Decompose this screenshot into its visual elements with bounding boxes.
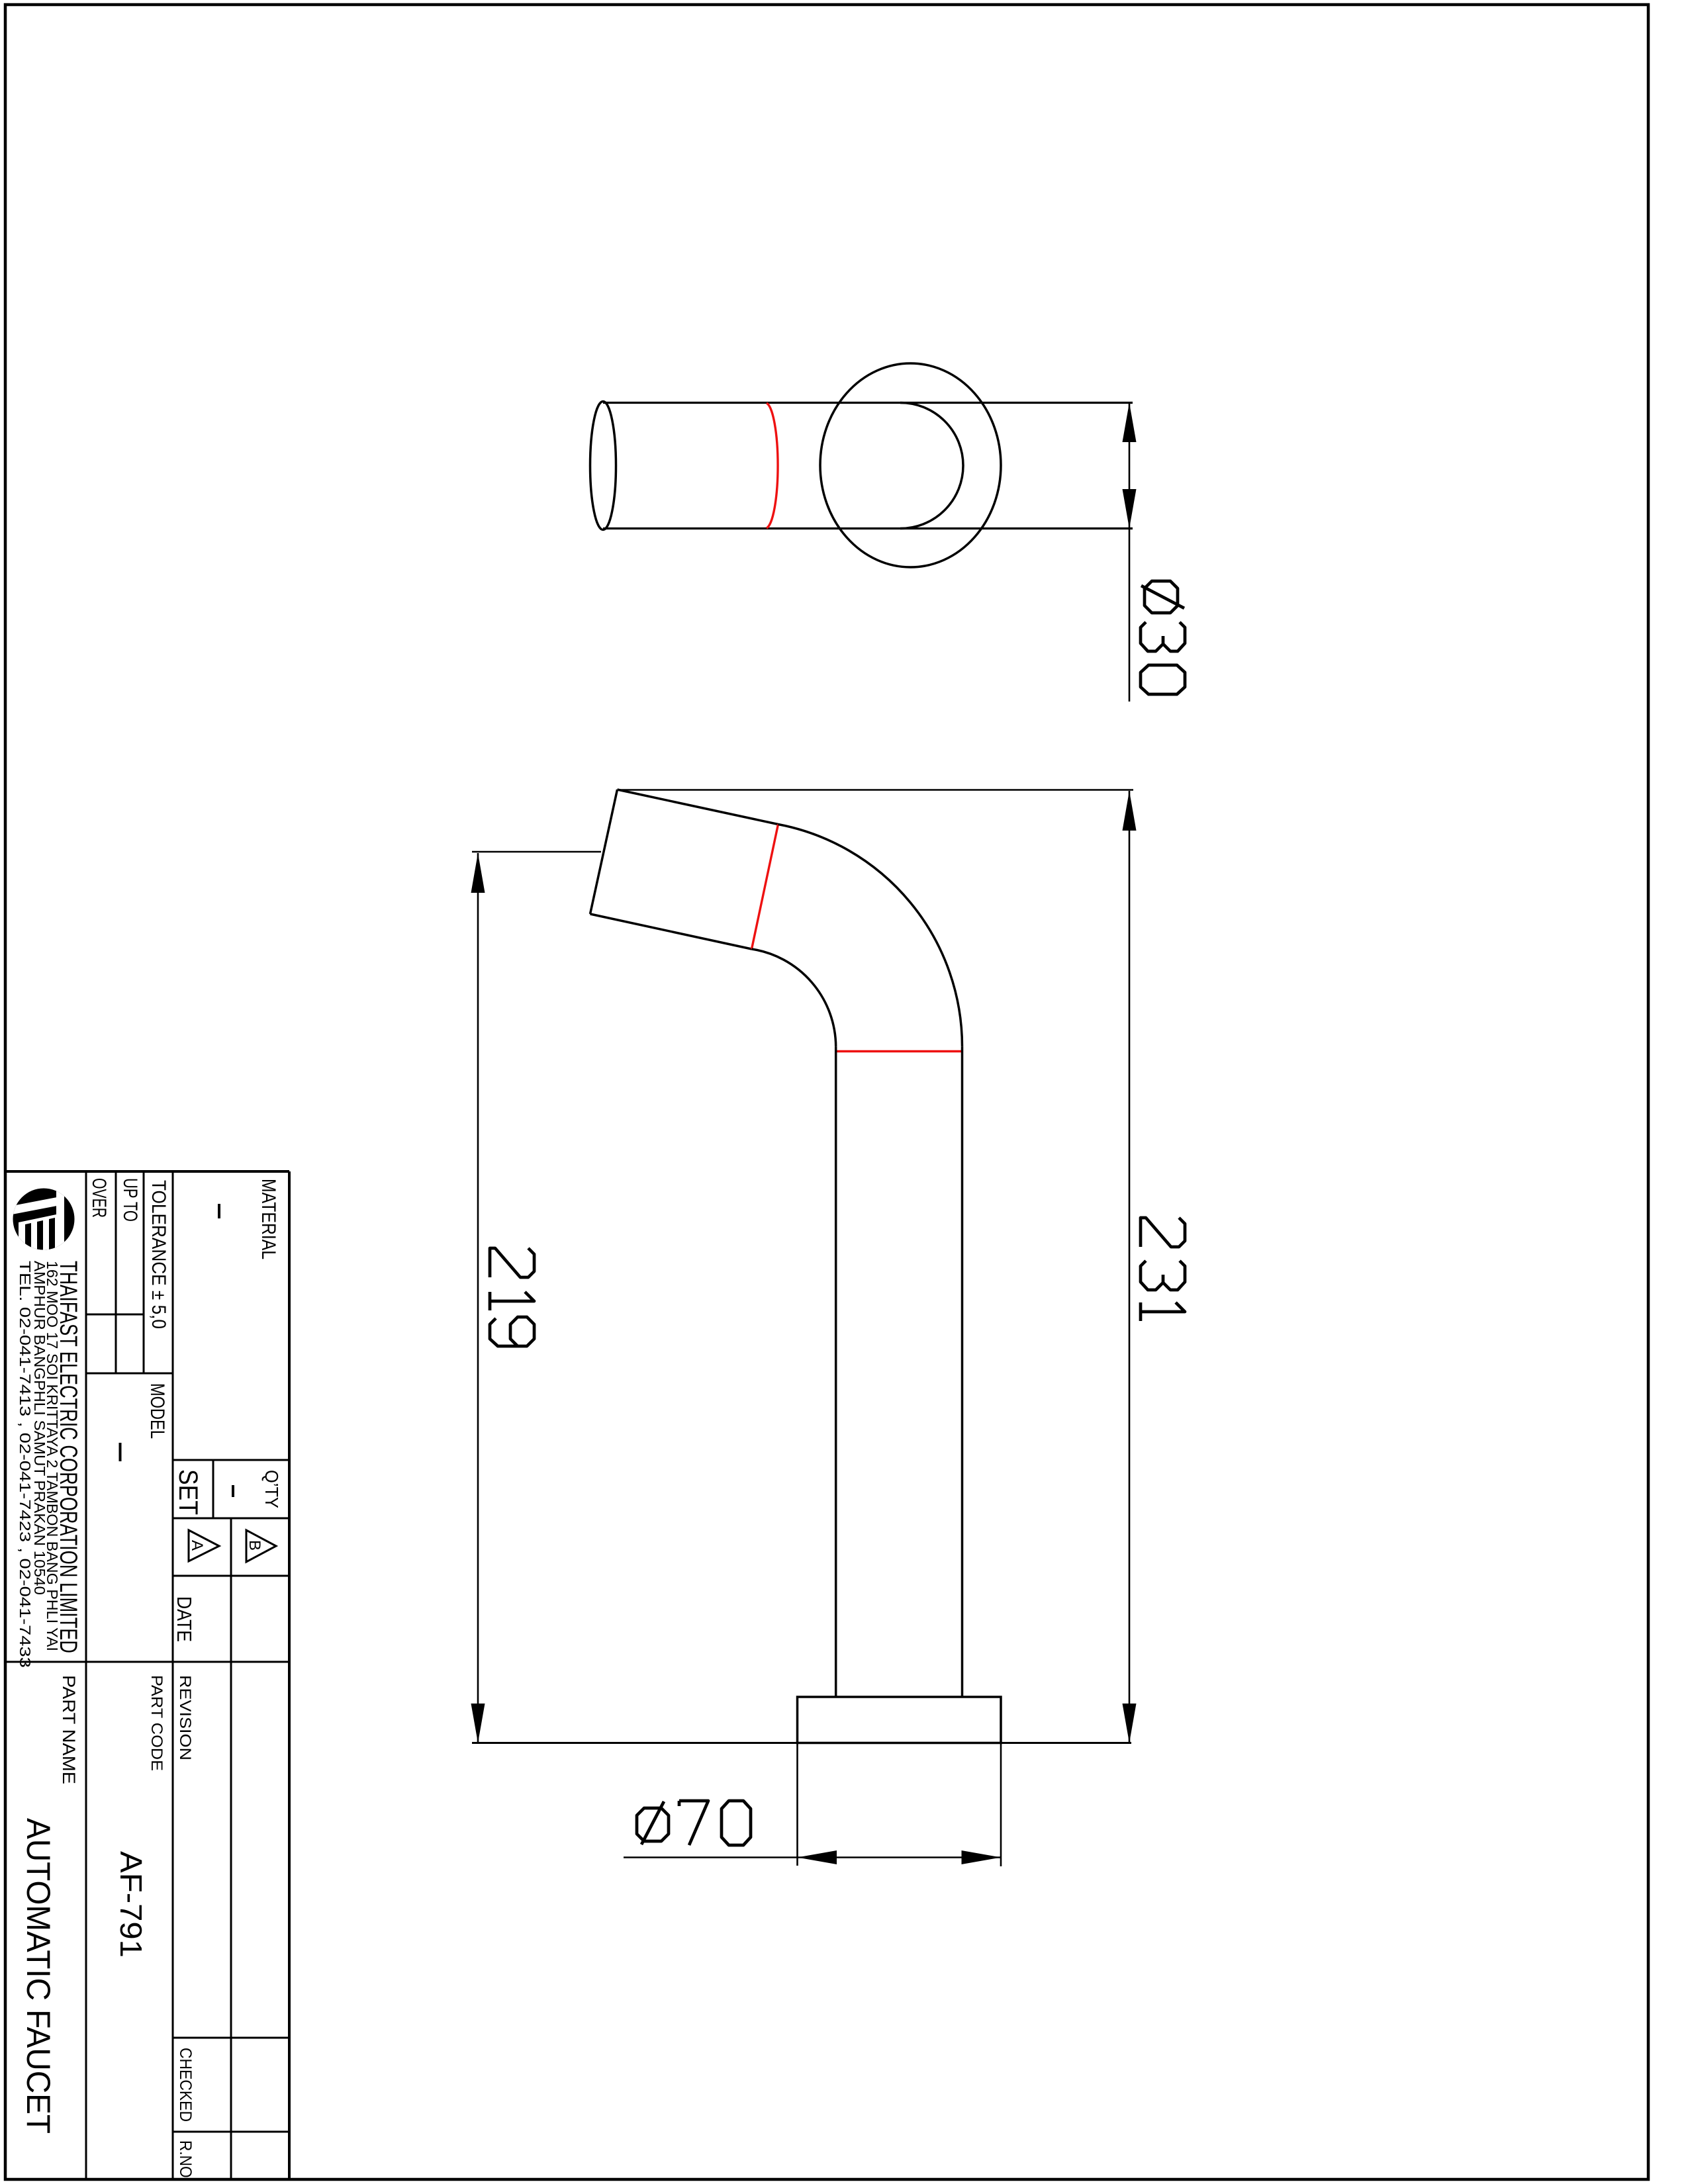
svg-text:AF-791: AF-791 bbox=[114, 1851, 148, 1958]
svg-text:PART CODE: PART CODE bbox=[148, 1675, 165, 1771]
svg-text:PART NAME: PART NAME bbox=[59, 1675, 79, 1784]
svg-text:TOLERANCE ± 5,0: TOLERANCE ± 5,0 bbox=[148, 1180, 169, 1329]
svg-text:TEL. 02-041-7413 , 02-041-7423: TEL. 02-041-7413 , 02-041-7423 , 02-041-… bbox=[17, 1261, 34, 1668]
svg-text:AUTOMATIC FAUCET: AUTOMATIC FAUCET bbox=[20, 1818, 57, 2134]
svg-text:REVISION: REVISION bbox=[176, 1675, 194, 1760]
svg-text:Q’TY: Q’TY bbox=[261, 1470, 282, 1508]
svg-text:DATE: DATE bbox=[173, 1596, 196, 1642]
svg-text:R.NO.: R.NO. bbox=[176, 2140, 195, 2182]
svg-text:MATERIAL: MATERIAL bbox=[258, 1179, 279, 1259]
svg-text:UP TO: UP TO bbox=[119, 1178, 141, 1222]
svg-text:A: A bbox=[188, 1540, 206, 1551]
svg-text:B: B bbox=[246, 1540, 263, 1551]
svg-text:OVER: OVER bbox=[88, 1178, 110, 1218]
svg-text:MODEL: MODEL bbox=[146, 1383, 168, 1439]
svg-text:SET: SET bbox=[173, 1469, 203, 1515]
svg-text:CHECKED: CHECKED bbox=[176, 2048, 195, 2122]
